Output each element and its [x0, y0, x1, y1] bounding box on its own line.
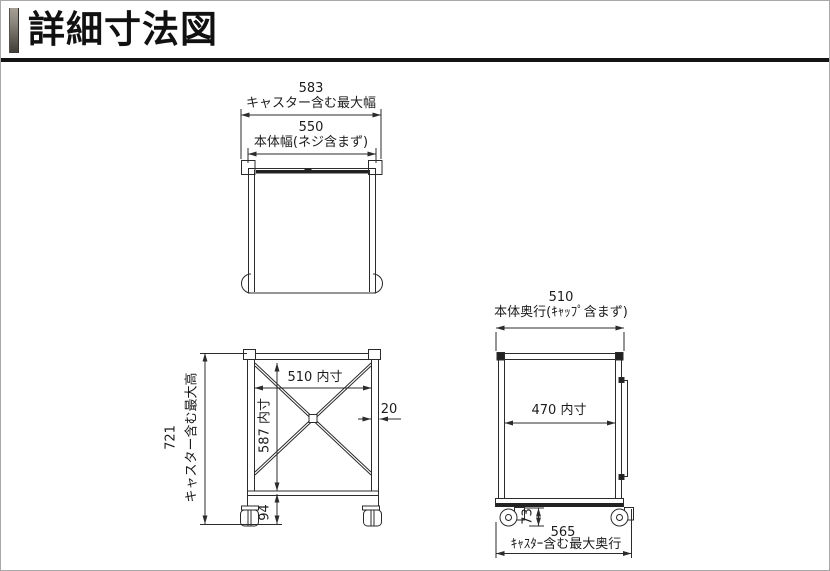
dim-caster-height-front: 94 — [258, 483, 273, 543]
dim-max-width-value: 583 — [251, 81, 371, 96]
dim-body-width-label: 本体幅(ネジ含まず) — [226, 135, 396, 150]
dim-max-height-value: 721 — [164, 398, 179, 478]
dim-frame-thickness: 20 — [378, 402, 400, 417]
dimension-diagram-page: 詳細寸法図 — [0, 0, 830, 571]
dim-inner-width: 510 内寸 — [265, 370, 365, 385]
dim-max-width-label: キャスター含む最大幅 — [221, 96, 401, 111]
dim-inner-height: 587 内寸 — [258, 376, 273, 476]
dim-body-depth-value: 510 — [521, 290, 601, 305]
drawing-canvas — [1, 1, 830, 571]
dim-body-depth-label: 本体奥行(ｷｬｯﾌﾟ含まず) — [476, 305, 646, 320]
dim-max-height-label: キャスター含む最大高 — [185, 358, 200, 518]
dim-body-width-value: 550 — [251, 120, 371, 135]
dim-max-depth-label: ｷｬｽﾀｰ含む最大奥行 — [481, 537, 651, 552]
dim-inner-depth: 470 内寸 — [509, 403, 609, 418]
side-view-drawing — [496, 328, 634, 558]
